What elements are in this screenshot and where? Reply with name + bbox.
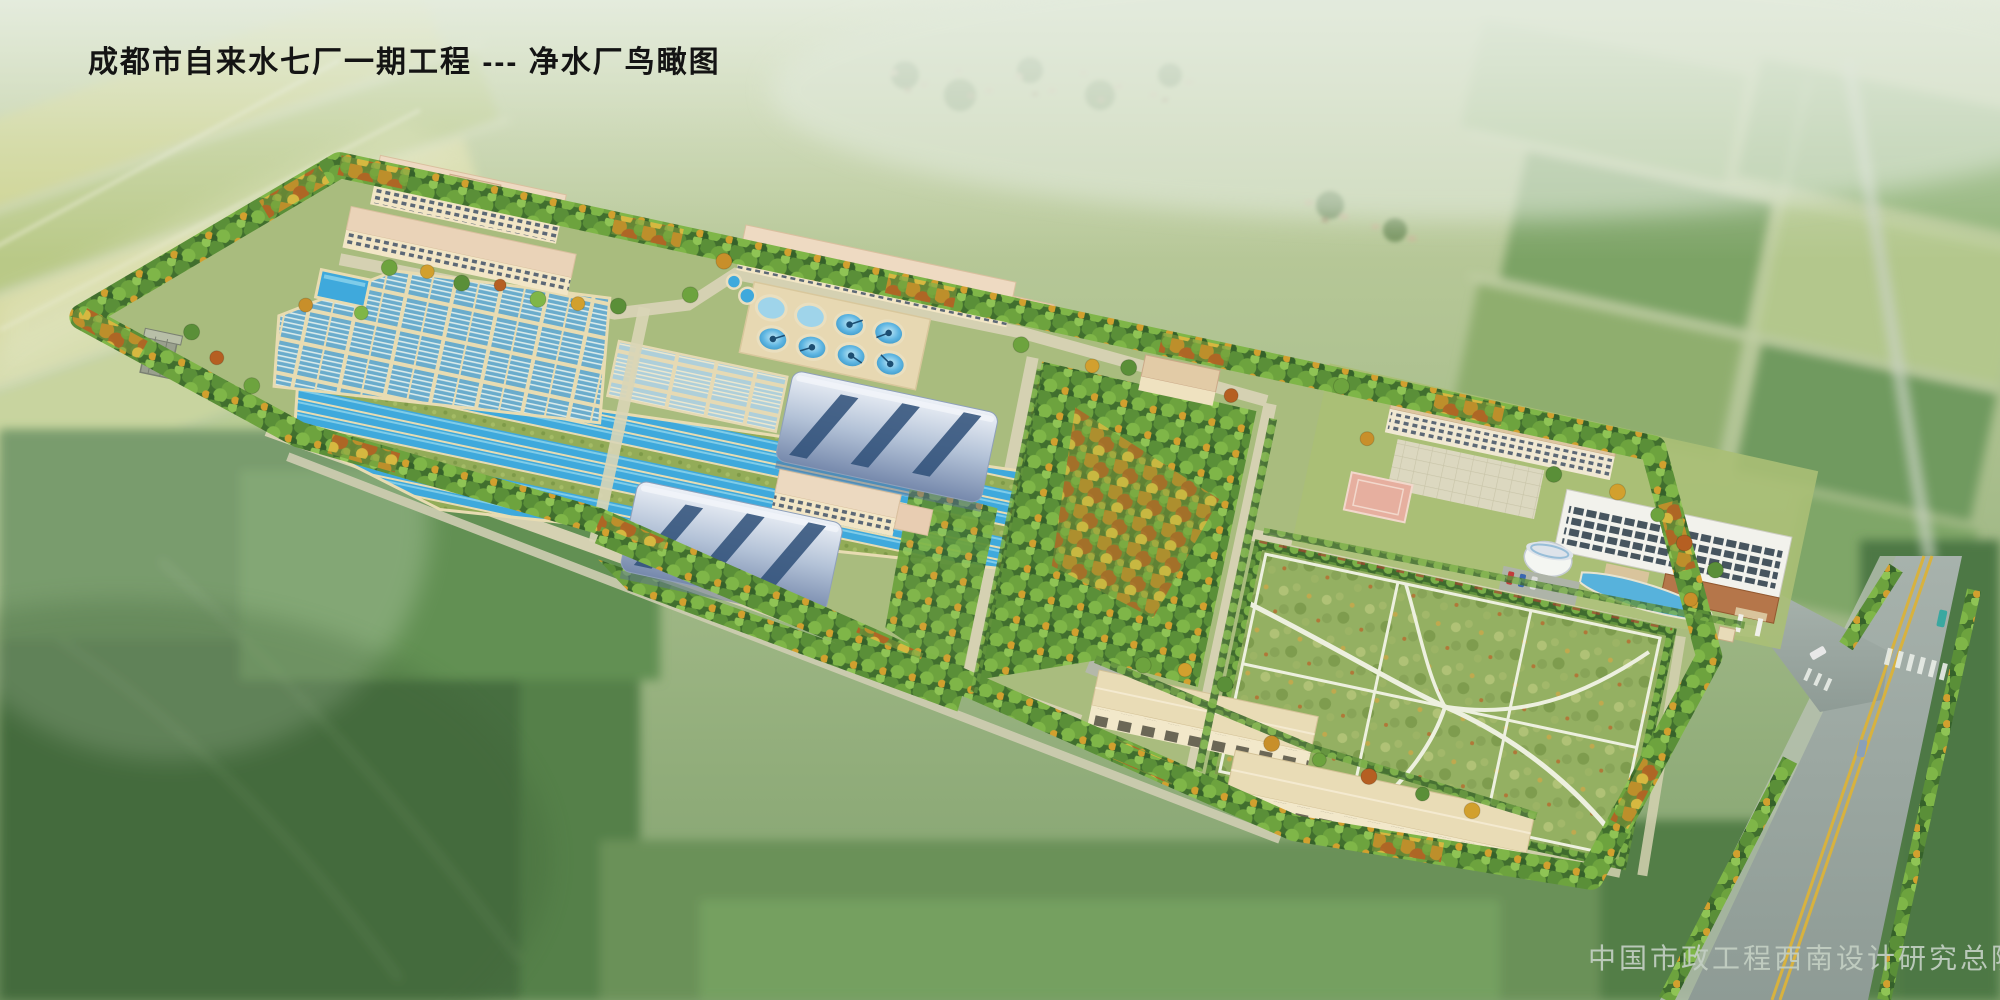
design-institute-credit: 中国市政工程西南设计研究总院: [1588, 943, 2000, 974]
small-tank-1: [726, 273, 743, 290]
drawing-title: 成都市自来水七厂一期工程 --- 净水厂鸟瞰图: [88, 45, 721, 79]
rendering-canvas: 成都市自来水七厂一期工程 --- 净水厂鸟瞰图 中国市政工程西南设计研究总院: [0, 0, 2000, 1000]
aerial-rendering: 成都市自来水七厂一期工程 --- 净水厂鸟瞰图 中国市政工程西南设计研究总院: [0, 0, 2000, 1000]
